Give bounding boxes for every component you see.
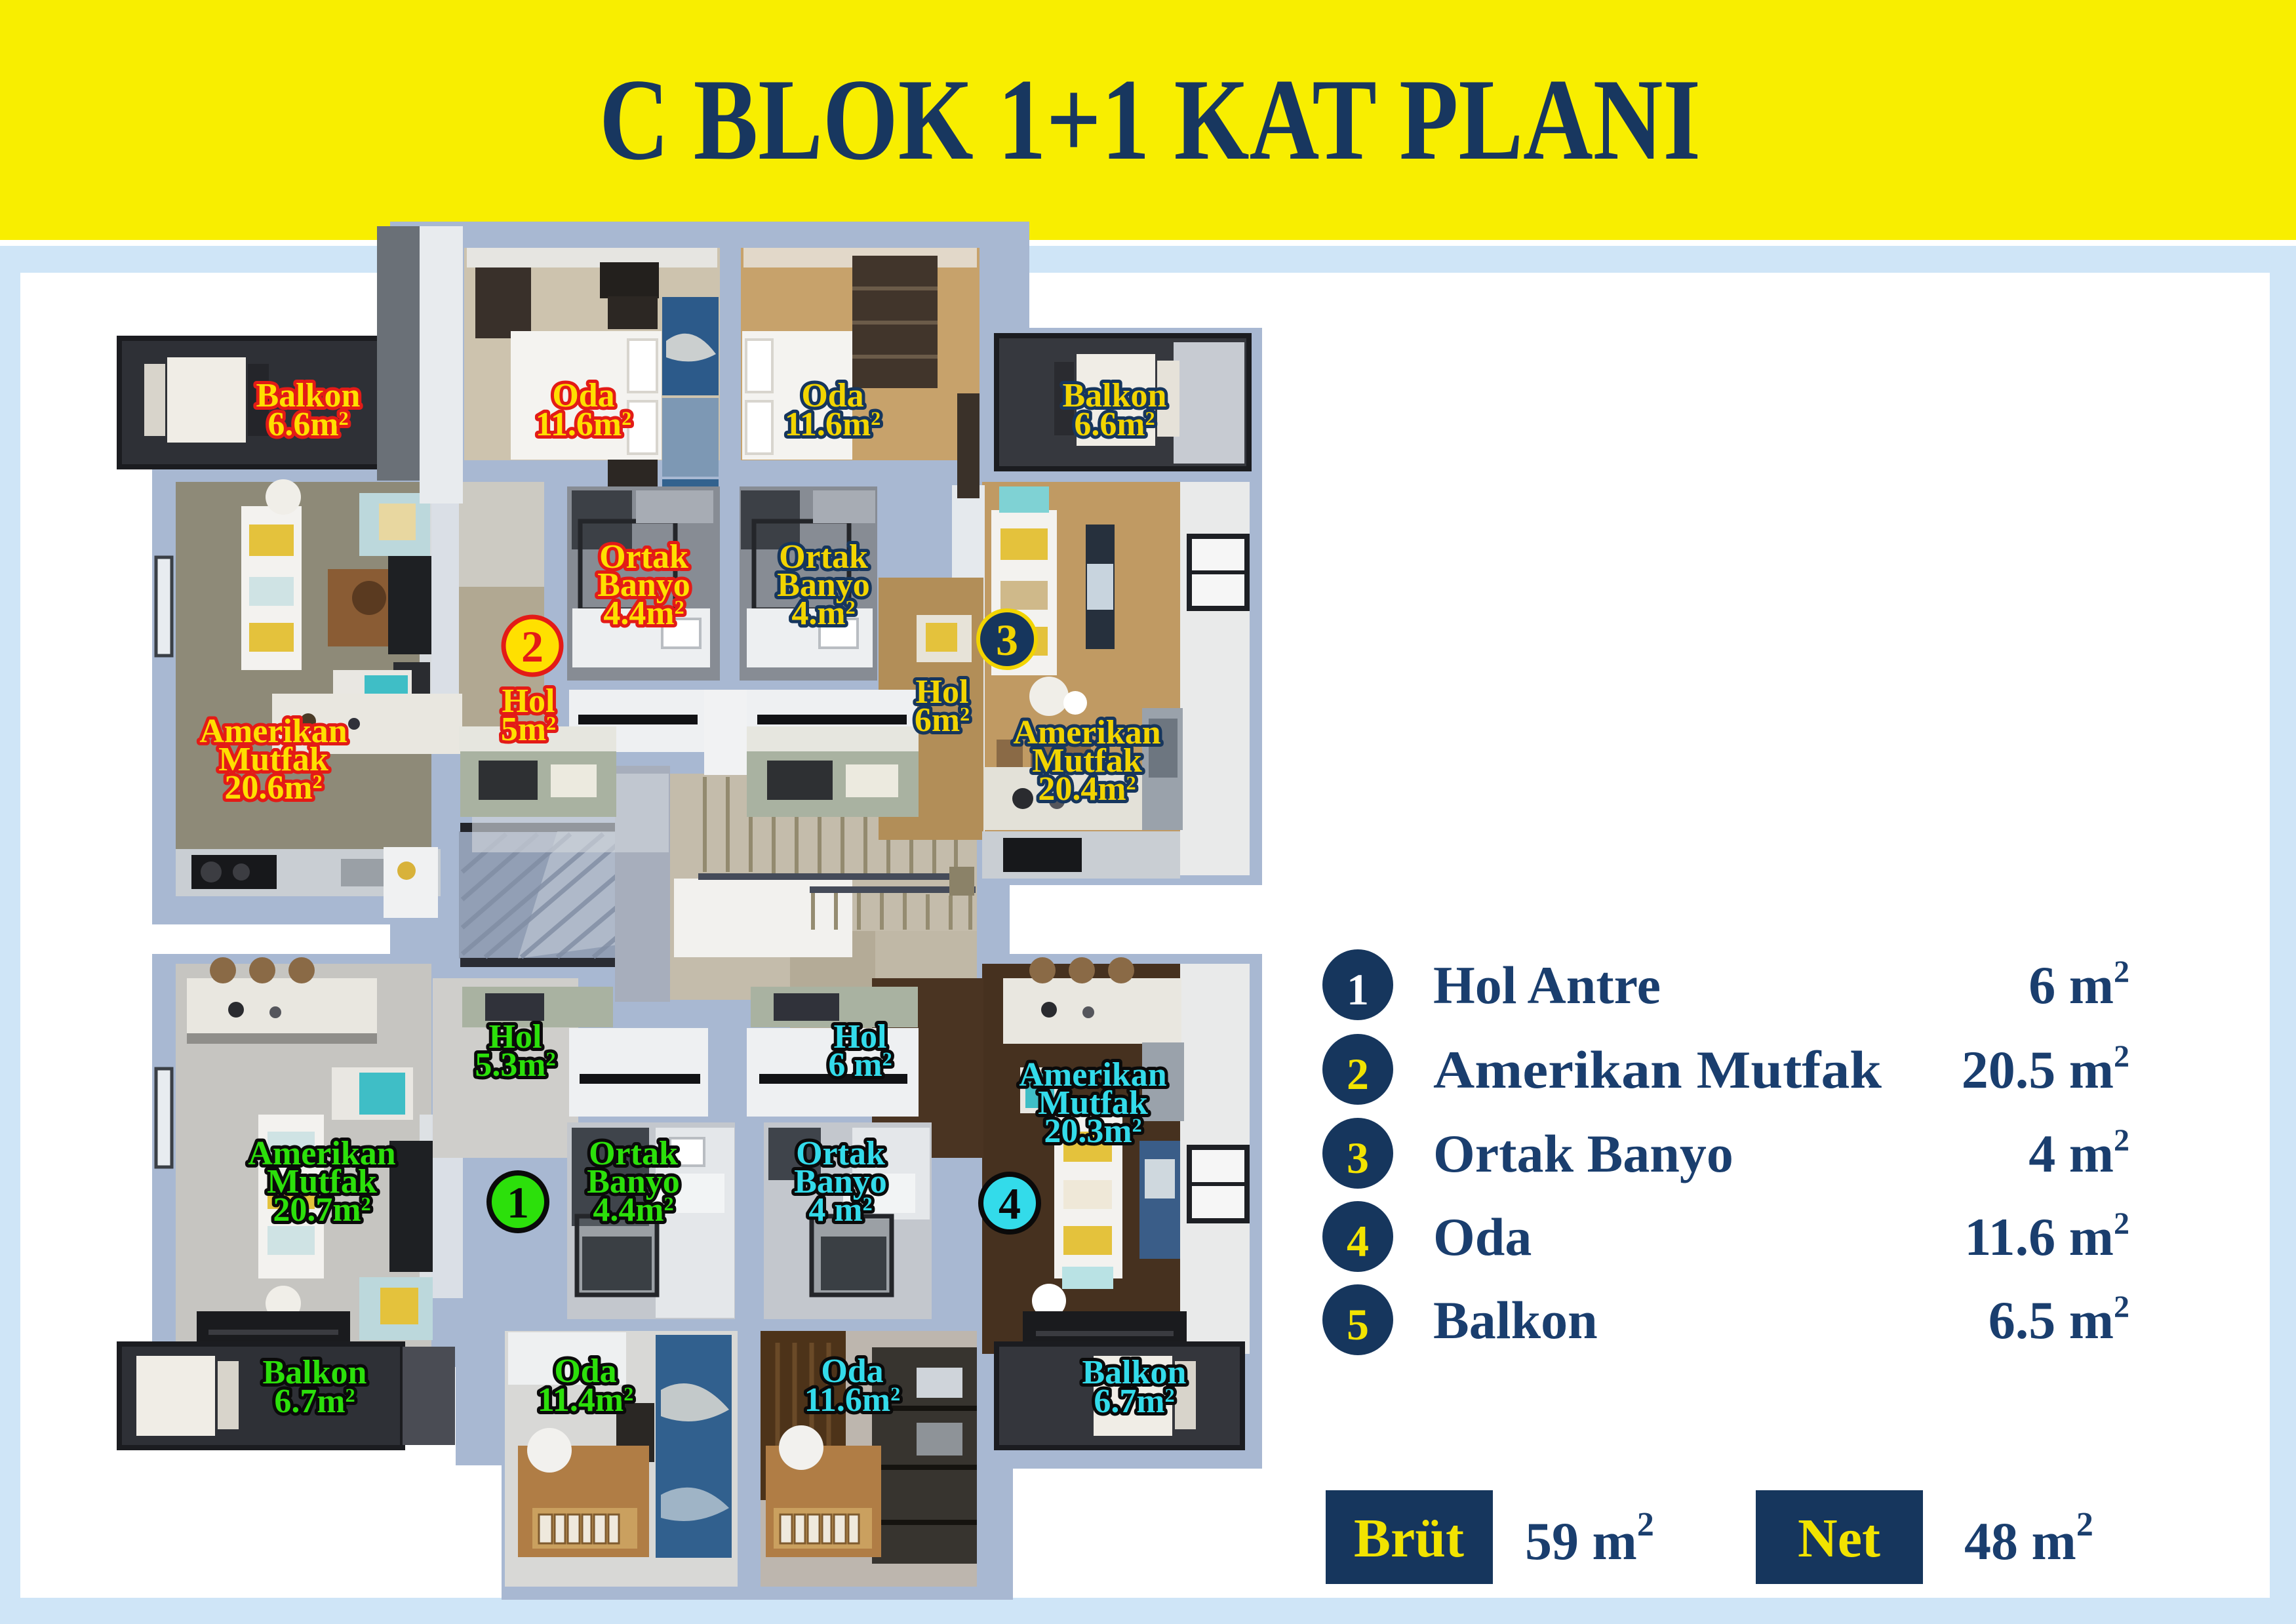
svg-text:1: 1	[1347, 964, 1369, 1014]
svg-text:6.6m2: 6.6m2	[1074, 406, 1155, 443]
svg-text:Brüt: Brüt	[1354, 1508, 1464, 1569]
svg-text:4: 4	[1347, 1216, 1369, 1266]
svg-text:Oda: Oda	[1433, 1207, 1532, 1267]
svg-text:20.7m2: 20.7m2	[273, 1191, 370, 1229]
svg-text:6.6m2: 6.6m2	[267, 406, 348, 443]
svg-text:2: 2	[1347, 1049, 1369, 1099]
svg-text:Amerikan Mutfak: Amerikan Mutfak	[1433, 1040, 1882, 1099]
svg-text:6.7m2: 6.7m2	[274, 1383, 355, 1420]
svg-text:5.3m2: 5.3m2	[475, 1046, 555, 1084]
svg-text:6.5 m2: 6.5 m2	[1989, 1290, 2129, 1350]
svg-text:11.6m2: 11.6m2	[804, 1381, 900, 1419]
svg-text:20.4m2: 20.4m2	[1038, 770, 1136, 808]
svg-text:Balkon: Balkon	[1433, 1290, 1598, 1350]
svg-text:4.4m2: 4.4m2	[603, 595, 684, 632]
svg-text:20.6m2: 20.6m2	[224, 769, 322, 806]
svg-text:C BLOK 1+1 KAT PLANI: C BLOK 1+1 KAT PLANI	[599, 54, 1701, 184]
svg-text:59 m2: 59 m2	[1525, 1506, 1654, 1571]
svg-text:4: 4	[999, 1179, 1021, 1229]
svg-text:Net: Net	[1798, 1508, 1880, 1569]
svg-text:2: 2	[521, 622, 544, 671]
svg-text:11.6m2: 11.6m2	[536, 406, 631, 443]
svg-text:48 m2: 48 m2	[1964, 1506, 2093, 1571]
svg-text:5: 5	[1347, 1299, 1369, 1349]
svg-text:6.7m2: 6.7m2	[1094, 1383, 1174, 1420]
svg-text:3: 3	[996, 615, 1018, 665]
svg-text:11.6 m2: 11.6 m2	[1964, 1206, 2129, 1267]
svg-text:11.6m2: 11.6m2	[785, 406, 881, 443]
svg-text:20.5 m2: 20.5 m2	[1962, 1039, 2129, 1099]
svg-text:Hol Antre: Hol Antre	[1433, 955, 1661, 1015]
svg-text:1: 1	[507, 1178, 529, 1227]
svg-text:Ortak Banyo: Ortak Banyo	[1433, 1124, 1733, 1183]
svg-text:11.4m2: 11.4m2	[538, 1381, 633, 1419]
svg-text:4.4m2: 4.4m2	[593, 1191, 673, 1229]
svg-text:20.3m2: 20.3m2	[1044, 1113, 1141, 1150]
svg-text:3: 3	[1347, 1133, 1369, 1183]
